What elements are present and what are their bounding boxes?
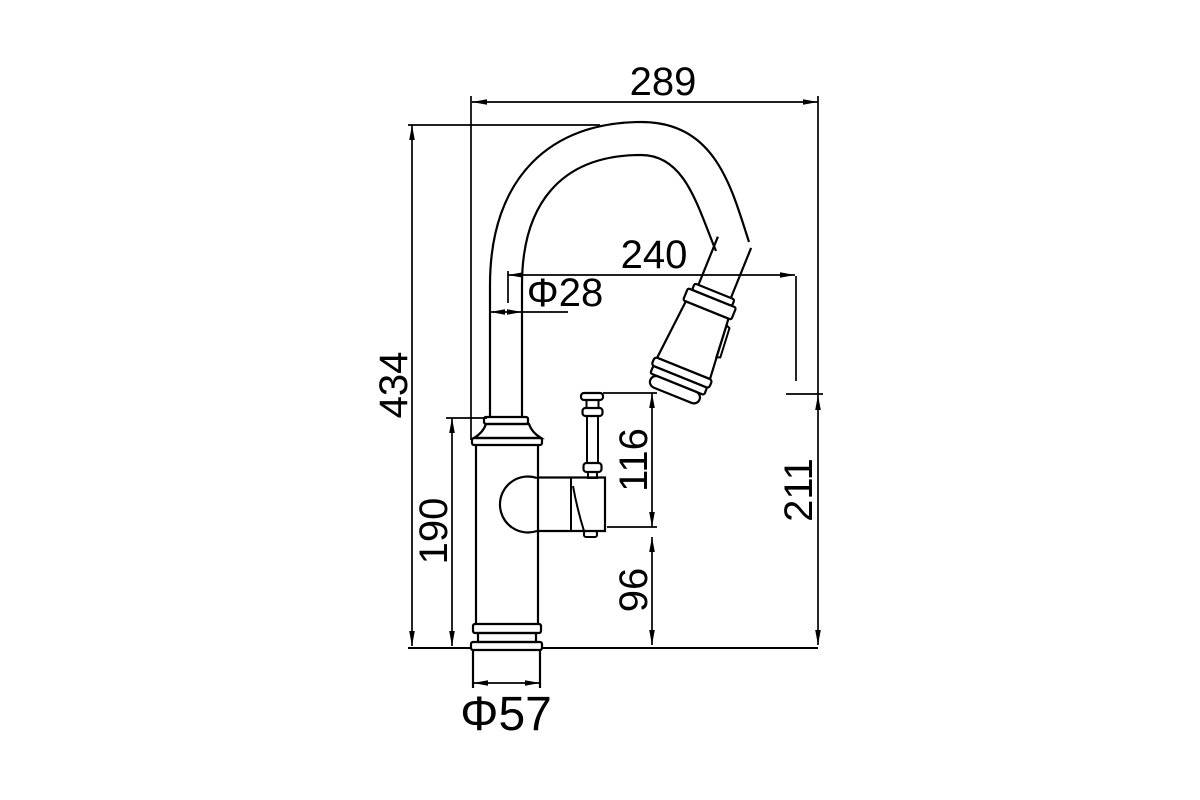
- deck-flange: [471, 642, 542, 650]
- faucet-dimension-drawing: 289 240 Φ28 434 190 116 96 211 Φ57: [0, 0, 1200, 800]
- handle-knob-neck: [587, 400, 599, 408]
- technical-drawing-canvas: 289 240 Φ28 434 190 116 96 211 Φ57: [0, 0, 1200, 800]
- label-overall-width: 289: [630, 60, 697, 104]
- body-cylinder: [476, 445, 538, 624]
- label-handle-upper-height: 116: [612, 428, 656, 492]
- body-lower-section: [478, 633, 536, 642]
- aerator-ring-upper: [651, 357, 712, 389]
- label-overall-height: 434: [372, 352, 416, 419]
- handle-knob-cap: [581, 393, 603, 400]
- riser-collar-flare: [474, 424, 541, 438]
- spray-button: [714, 325, 732, 358]
- handle-joint-sphere: [500, 476, 537, 532]
- label-spout-diameter: Φ28: [527, 271, 603, 315]
- handle-lever-edge: [573, 486, 584, 531]
- handle-stem-lower: [588, 472, 597, 478]
- handle-knob-ring: [583, 408, 603, 416]
- label-base-diameter: Φ57: [460, 688, 552, 741]
- spray-collar-ring: [692, 283, 734, 306]
- label-handle-lower-height: 96: [612, 568, 656, 613]
- label-outlet-height: 211: [777, 458, 821, 522]
- spray-tip-cap: [648, 374, 702, 405]
- handle-under-nub: [584, 531, 597, 537]
- body-top-ring: [472, 438, 542, 445]
- label-body-height: 190: [412, 498, 456, 565]
- handle-stem-ring: [584, 463, 602, 472]
- body-bottom-ring: [473, 624, 541, 633]
- handle-stem: [587, 416, 598, 463]
- label-spout-reach: 240: [621, 233, 688, 277]
- spout-outer-curve: [490, 122, 749, 418]
